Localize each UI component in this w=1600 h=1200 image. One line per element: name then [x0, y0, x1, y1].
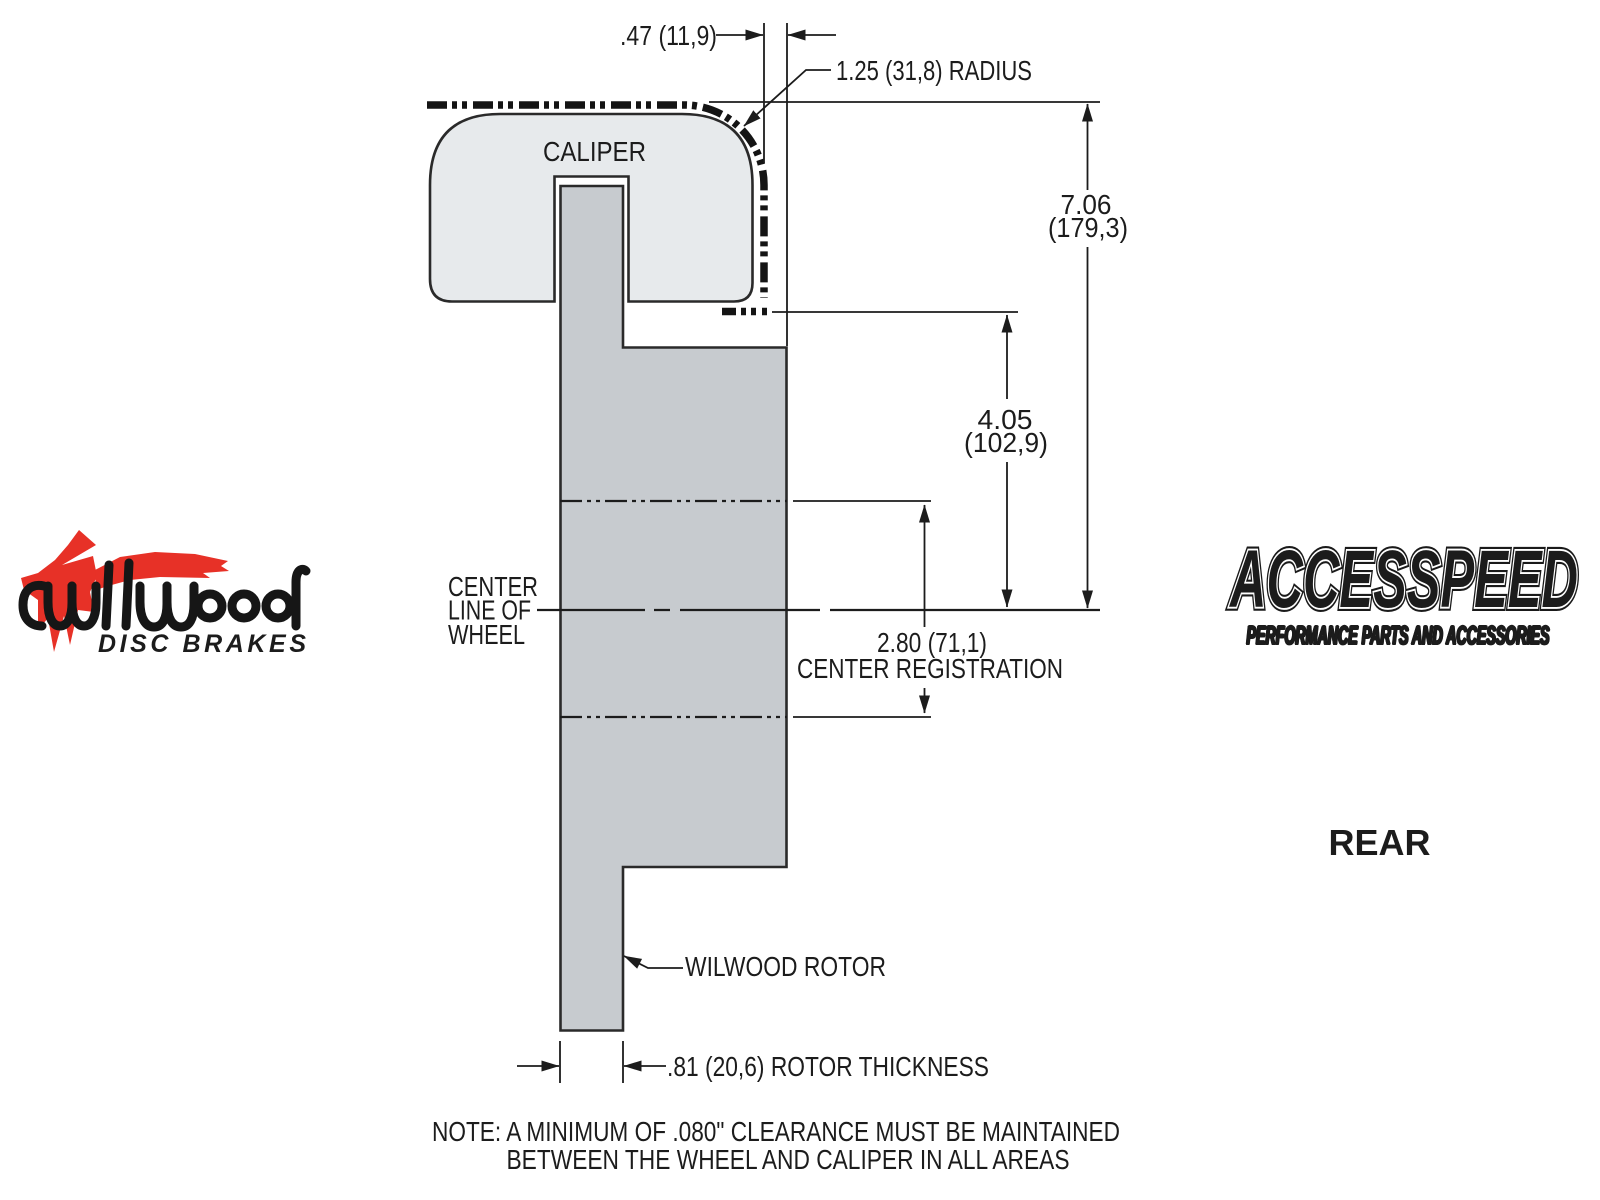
svg-text:REAR: REAR	[1328, 822, 1430, 863]
svg-text:PERFORMANCE PARTS AND ACCESSOR: PERFORMANCE PARTS AND ACCESSORIES	[1247, 621, 1550, 651]
svg-text:1.25 (31,8) RADIUS: 1.25 (31,8) RADIUS	[836, 55, 1032, 86]
svg-text:WILWOOD ROTOR: WILWOOD ROTOR	[685, 951, 886, 982]
svg-text:BETWEEN THE WHEEL AND CALIPER: BETWEEN THE WHEEL AND CALIPER IN ALL ARE…	[507, 1144, 1070, 1175]
svg-text:(102,9): (102,9)	[964, 427, 1048, 458]
svg-text:CENTER REGISTRATION: CENTER REGISTRATION	[797, 653, 1063, 684]
svg-text:.81 (20,6) ROTOR THICKNESS: .81 (20,6) ROTOR THICKNESS	[667, 1051, 989, 1082]
svg-text:ACCESSPEED: ACCESSPEED	[1229, 534, 1578, 625]
svg-text:WHEEL: WHEEL	[448, 619, 525, 650]
svg-text:DISC BRAKES: DISC BRAKES	[98, 630, 306, 658]
svg-text:CALIPER: CALIPER	[543, 136, 646, 167]
svg-text:.47 (11,9): .47 (11,9)	[620, 20, 717, 51]
svg-text:(179,3): (179,3)	[1048, 212, 1128, 243]
svg-text:NOTE: A MINIMUM OF .080" CLEAR: NOTE: A MINIMUM OF .080" CLEARANCE MUST …	[432, 1116, 1120, 1147]
